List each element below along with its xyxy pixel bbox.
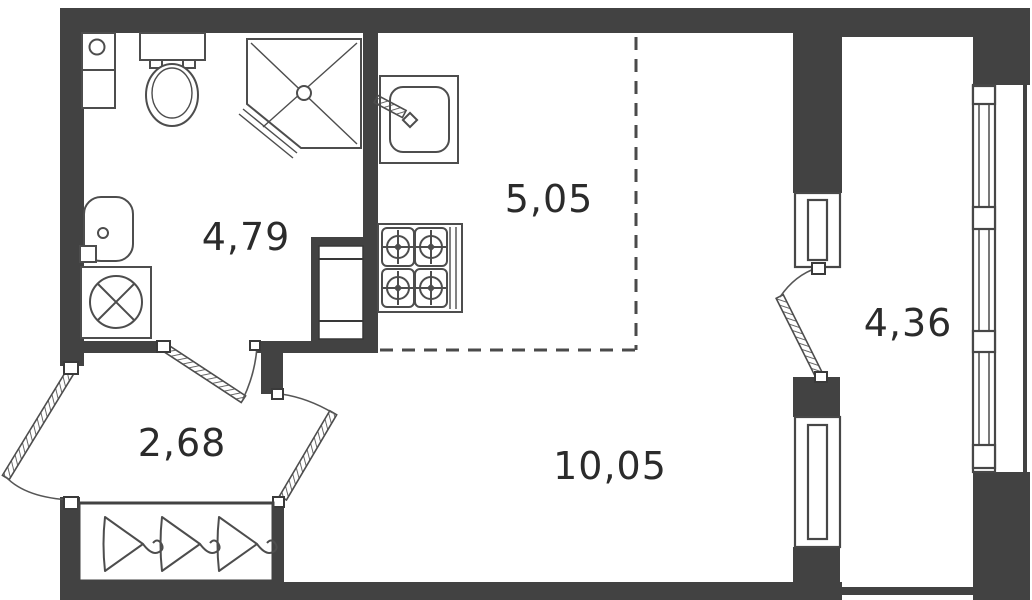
wall-balcony-pillar bbox=[793, 8, 842, 193]
wall-balcony-left-bottom bbox=[793, 547, 840, 600]
glazing-joint bbox=[973, 445, 995, 468]
wall-balcony-right-top bbox=[973, 8, 1030, 85]
floor-plan-canvas: 4,79 5,05 2,68 10,05 4,36 bbox=[0, 0, 1032, 600]
stove-icon bbox=[378, 224, 462, 312]
balcony-window-lower bbox=[795, 417, 840, 547]
door-jamb-knob bbox=[815, 372, 827, 382]
washbasin-icon bbox=[80, 197, 133, 262]
door-swing-arc bbox=[243, 347, 257, 399]
balcony-door bbox=[776, 268, 823, 379]
door-jamb-knob bbox=[64, 497, 78, 509]
washing-machine-icon bbox=[81, 267, 151, 338]
toilet-icon bbox=[140, 33, 205, 126]
door-swing-arc bbox=[6, 477, 72, 500]
bathroom-door bbox=[162, 344, 257, 403]
glazing-frame bbox=[973, 85, 995, 472]
door-jamb-knob bbox=[273, 497, 284, 507]
living-room-door bbox=[280, 394, 337, 500]
wardrobe bbox=[79, 503, 277, 581]
door-jamb-knob bbox=[812, 263, 825, 274]
window-sash bbox=[808, 425, 827, 539]
area-label-living: 10,05 bbox=[553, 444, 667, 488]
door-jamb-knob bbox=[64, 362, 78, 374]
wall-hallway-living bbox=[261, 348, 283, 394]
area-label-kitchen: 5,05 bbox=[505, 177, 594, 221]
wall-balcony-right-edge bbox=[1023, 85, 1027, 472]
glazing-joint bbox=[973, 207, 995, 229]
sink-counter bbox=[380, 76, 458, 163]
wall-balcony-bottom-edge bbox=[842, 587, 973, 595]
wall-top bbox=[60, 8, 800, 33]
kitchen-sink-icon bbox=[374, 76, 458, 163]
floor-plan: 4,79 5,05 2,68 10,05 4,36 bbox=[0, 0, 1032, 600]
glazing-joint bbox=[973, 86, 995, 104]
wall-balcony-right-bottom bbox=[973, 472, 1030, 600]
cabinet-top bbox=[82, 33, 115, 70]
window-sash bbox=[808, 200, 827, 260]
door-jamb-knob bbox=[250, 341, 260, 350]
kitchen-fixtures bbox=[374, 76, 462, 312]
area-label-bathroom: 4,79 bbox=[202, 215, 291, 259]
toilet-tank bbox=[140, 33, 205, 60]
wall-bathroom-bottom-left bbox=[60, 341, 163, 353]
balcony-glazing bbox=[973, 85, 995, 472]
glazing-joint bbox=[973, 331, 995, 352]
shower-drain bbox=[297, 86, 311, 100]
door-leaf bbox=[162, 344, 246, 403]
door-leaf bbox=[280, 411, 337, 500]
shower-icon bbox=[239, 39, 361, 158]
wall-bottom bbox=[60, 582, 842, 600]
door-jamb-knob bbox=[272, 389, 283, 399]
door-jamb-knob bbox=[157, 341, 170, 352]
door-leaf bbox=[2, 367, 75, 480]
toilet-bowl bbox=[146, 64, 198, 126]
entrance-door bbox=[2, 367, 75, 500]
balcony-window-upper bbox=[795, 193, 840, 267]
cabinet-bottom bbox=[82, 70, 115, 108]
basin-pedestal bbox=[80, 246, 96, 262]
area-label-balcony: 4,36 bbox=[864, 301, 953, 345]
door-leaf bbox=[776, 295, 823, 379]
ventilation-shaft bbox=[319, 246, 363, 339]
area-label-hallway: 2,68 bbox=[138, 421, 227, 465]
bathroom-cabinet-icon bbox=[82, 33, 115, 108]
door-swing-arc bbox=[281, 394, 333, 413]
